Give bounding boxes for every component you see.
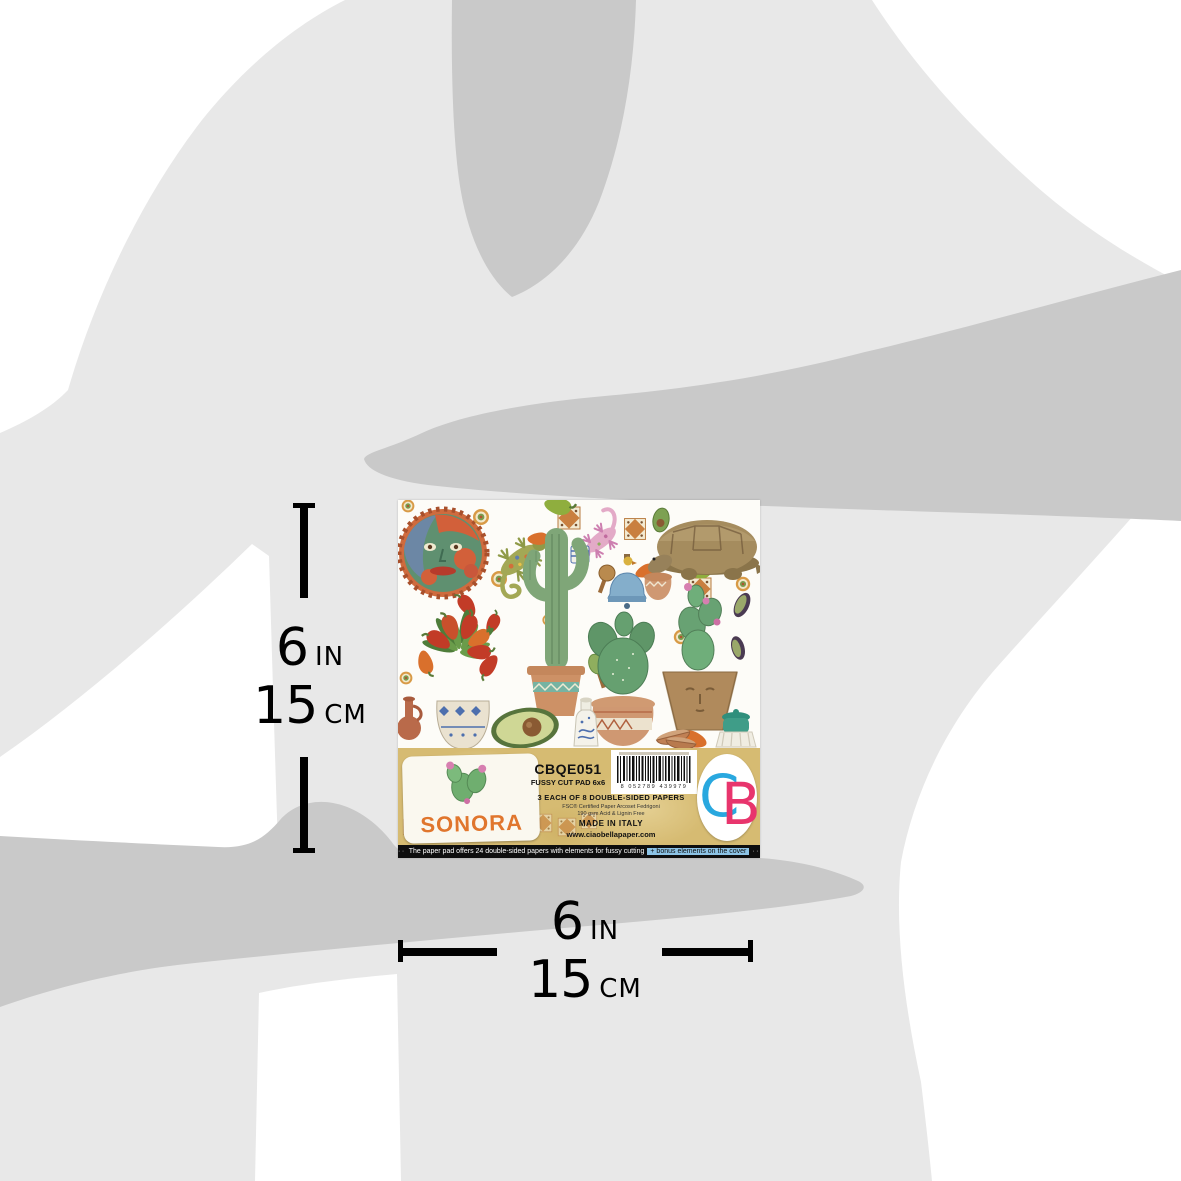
tagline-dots-right: ····· [752, 848, 760, 855]
size-reference-image: SONORA CBQE051 FUSSY CUT PAD 6x6 [0, 0, 1181, 1181]
medallion-icon [473, 509, 489, 525]
vertical-inches-value: 6 [276, 622, 308, 674]
avocado-slice-icon [730, 590, 754, 619]
tagline-text: The paper pad offers 24 double-sided pap… [409, 848, 645, 855]
product-code-block: CBQE051 FUSSY CUT PAD 6x6 [510, 761, 626, 787]
barcode-digits: 8 052789 439979 [621, 784, 688, 790]
brand-initial-b: B [721, 770, 757, 838]
sun-face-icon [399, 509, 487, 597]
product-info-block: 3 EACH OF 8 DOUBLE-SIDED PAPERS FSC® Cer… [516, 793, 706, 839]
contents-line: 3 EACH OF 8 DOUBLE-SIDED PAPERS [516, 793, 706, 802]
medallion-icon [402, 500, 415, 512]
paper-spec-line: 190 gsm Acid & Lignin Free [516, 811, 706, 817]
cover-band: SONORA CBQE051 FUSSY CUT PAD 6x6 [398, 748, 760, 845]
website-line: www.ciaobellapaper.com [516, 830, 706, 839]
product-type: FUSSY CUT PAD 6x6 [510, 778, 626, 787]
product-code: CBQE051 [510, 761, 626, 777]
vertical-cm-value: 15 [253, 680, 317, 732]
saguaro-cactus-icon [527, 528, 585, 716]
arm-body-gap [255, 974, 401, 1181]
paper-pad-cover: SONORA CBQE051 FUSSY CUT PAD 6x6 [398, 500, 760, 858]
collection-title: SONORA [420, 810, 523, 839]
vertical-inches-unit: IN [315, 644, 344, 670]
horizontal-cm-unit: CM [599, 976, 642, 1002]
vertical-ruler-bottom-cap [293, 848, 315, 853]
cover-collage [398, 500, 760, 748]
bell-icon [608, 554, 646, 609]
horizontal-cm-value: 15 [528, 954, 592, 1006]
horizontal-ruler-right-cap [748, 940, 753, 962]
barcode-fine-print [619, 752, 689, 755]
horizontal-inches-unit: IN [590, 918, 619, 944]
medallion-icon [400, 672, 413, 685]
horizontal-ruler-left-line [398, 948, 497, 956]
avocado-slice-icon [729, 635, 748, 662]
barcode-bars [617, 756, 691, 783]
collage-art [398, 500, 760, 748]
certification-line: FSC® Certified Paper Arcoset Fedrigoni [516, 804, 706, 810]
ciao-bella-logo: C B [697, 754, 757, 841]
cover-tagline-strip: ····· The paper pad offers 24 double-sid… [398, 845, 760, 858]
prickly-pear-face-pot-icon [663, 583, 737, 730]
vertical-ruler-lower-line [300, 757, 308, 849]
vertical-dimension-label: 6 IN 15 CM [235, 622, 385, 738]
terracotta-pot-icon [644, 573, 672, 601]
made-in-line: MADE IN ITALY [516, 819, 706, 828]
vertical-cm-unit: CM [324, 702, 367, 728]
horizontal-dimension-label: 6 IN 15 CM [500, 896, 670, 1012]
tagline-dots-left: ····· [398, 848, 406, 855]
chili-plant-icon [414, 608, 501, 748]
tagline-highlight: + bonus elements on the cover [647, 848, 749, 855]
avocado-icon [651, 507, 671, 533]
barcode: 8 052789 439979 [611, 750, 697, 794]
tile-icon [625, 519, 646, 540]
sonora-cactus-icon [432, 756, 509, 810]
horizontal-inches-value: 6 [551, 896, 583, 948]
terracotta-bottle-icon [398, 697, 421, 741]
horizontal-ruler-right-line [662, 948, 753, 956]
vertical-ruler-upper-line [300, 504, 308, 598]
